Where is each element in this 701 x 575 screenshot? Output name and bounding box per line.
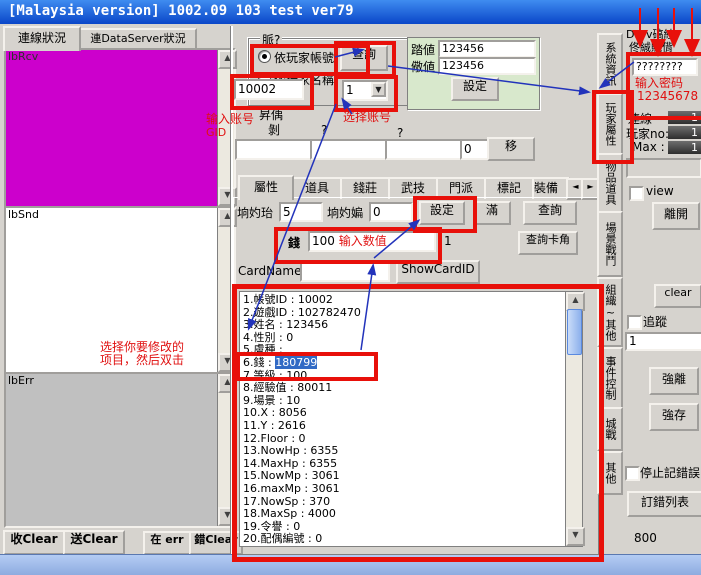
taskbar [0,554,701,575]
list-item[interactable]: 11.Y : 2616 [243,420,582,433]
port-value: 800 [634,531,657,545]
vtab-player-attributes[interactable]: 玩家屬性 [597,93,623,155]
value-row2-input[interactable]: 123456 [438,57,536,75]
list-item[interactable]: 3.姓名 : 123456 [243,319,582,332]
tab-skills[interactable]: 武技 [388,177,438,199]
list-item[interactable]: 1.帳號ID : 10002 [243,294,582,307]
scroll-up-icon[interactable]: ▲ [218,50,237,69]
cardname-input[interactable] [300,261,390,282]
radio-by-account[interactable] [258,50,271,63]
list-item[interactable]: 20.配偶編號 : 0 [243,533,582,546]
list-item[interactable]: 13.NowHp : 6355 [243,445,582,458]
field1-input[interactable]: 5 [279,202,323,222]
vtab-event-control[interactable]: 事件控制 [597,347,623,409]
attr-set-button[interactable]: 設定 [419,201,465,225]
list-item[interactable]: 4.性別 : 0 [243,332,582,345]
force-save-button[interactable]: 強存 [649,403,699,431]
transfer-label-left: 剝 [268,121,280,138]
transfer-q1: ? [321,123,327,137]
stop-log-label: 停止記錯誤 [640,464,701,481]
status-bar-empty [626,158,701,178]
annotation-enter-account: 输入账号 GID [206,113,254,139]
vtab-other[interactable]: 其他 [597,451,623,495]
dropdown-arrow-icon[interactable]: ▼ [371,82,386,97]
selected-value: 180799 [275,356,317,369]
transfer-count-input[interactable]: 0 [460,139,490,160]
scroll-down-icon[interactable]: ▼ [566,527,585,546]
player-list-scrollbar[interactable]: ▲ ▼ [565,292,582,546]
tab-faction[interactable]: 門派 [436,177,486,199]
transfer-input-1[interactable] [235,139,313,160]
error-list-button[interactable]: 訂錯列表 [627,491,701,517]
money-label: 錢 [288,234,300,251]
query-group-title: 脈? [260,31,282,48]
err-button[interactable]: 在 err [143,531,191,555]
window-title: [Malaysia version] 1002.09 103 test ver7… [8,3,354,19]
snd-listbox-label: lbSnd [8,208,39,221]
tab-items[interactable]: 道具 [292,177,342,199]
err-listbox[interactable]: lbErr ▲ ▼ [4,372,236,528]
money-count-label: 1 [444,234,452,248]
annotation-select-account: 选择账号 [343,111,391,124]
move-button[interactable]: 移 [487,137,535,161]
field2-input[interactable]: 0 [369,202,413,222]
attr-query-button[interactable]: 查詢 [523,201,577,225]
tab-equipment[interactable]: 裝備 [532,177,570,199]
tab-connection-status[interactable]: 連線狀況 [3,26,81,51]
view-label: view [646,184,674,198]
account-select[interactable]: 1 ▼ [342,80,388,101]
rcv-clear-button[interactable]: 收Clear [3,530,65,555]
view-checkbox[interactable] [629,186,644,201]
title-bar[interactable]: [Malaysia version] 1002.09 103 test ver7… [0,0,701,24]
max-value: 1 [668,141,701,154]
tab-dataserver-status[interactable]: 連DataServer狀況 [79,28,197,50]
money-input[interactable]: 100 输入数值 [308,231,436,252]
vtab-system-info[interactable]: 系統資訊 [597,33,623,95]
vtab-city-war[interactable]: 城戰 [597,407,623,451]
field2-label: 垧妁媥 [327,204,363,221]
vtab-org-other[interactable]: 組織~其他 [597,277,623,347]
list-item[interactable]: 16.maxMp : 3061 [243,483,582,496]
cardname-label: CardName [238,264,301,278]
annotation-select-item: 选择你要修改的 项目，然后双击 [100,341,184,367]
tab-marks[interactable]: 標記 [484,177,534,199]
snd-clear-button[interactable]: 送Clear [63,530,125,555]
playerno-value: 1 [668,126,701,139]
full-button[interactable]: 滿 [473,201,511,225]
annotation-password-hint: 12345678 [637,90,698,103]
password-input[interactable]: ???????? [632,58,698,76]
transfer-input-2[interactable] [310,139,388,160]
list-item[interactable]: 8.經驗值 : 80011 [243,382,582,395]
player-list[interactable]: 1.帳號ID : 10002 2.遊戲ID : 102782470 3.姓名 :… [239,291,583,547]
tab-bank[interactable]: 錢莊 [340,177,390,199]
radio-by-account-label: 依玩家帳號 [274,49,334,66]
scrollbar-thumb[interactable] [567,309,582,355]
showcardid-button[interactable]: ShowCardID [396,260,480,284]
track-label: 追蹤 [643,313,667,330]
tab-attributes[interactable]: 屬性 [238,175,294,200]
err-listbox-label: lbErr [8,374,34,387]
query-button[interactable]: 查詢 [340,45,388,71]
max-label: Max : [632,140,665,154]
field1-label: 垧妁珆 [237,204,273,221]
annotation-enter-value: 输入数值 [339,234,387,248]
rcv-listbox[interactable]: lbRcv ▲ ▼ [4,48,236,208]
transfer-input-3[interactable] [385,139,463,160]
vtab-scene-battle[interactable]: 場景戰鬥 [597,211,623,277]
ds-line2: 佟絾賳偝 [629,39,673,55]
track-input[interactable]: 1 [625,332,701,351]
rcv-listbox-label: lbRcv [8,50,38,63]
value-row2-label: 儆値 [411,58,435,75]
leave-button[interactable]: 離開 [652,202,700,230]
value-set-button[interactable]: 設定 [451,77,499,101]
clear-button[interactable]: clear [654,284,701,308]
force-leave-button[interactable]: 強離 [649,367,699,395]
app-window: [Malaysia version] 1002.09 103 test ver7… [0,0,701,575]
value-row1-label: 踏値 [411,41,435,58]
list-item[interactable]: 18.MaxSp : 4000 [243,508,582,521]
vtab-item-props[interactable]: 物品道具 [597,153,623,213]
account-input[interactable]: 10002 [234,79,304,100]
list-item-money[interactable]: 6.錢 : 180799 [243,357,582,370]
value-row1-input[interactable]: 123456 [438,40,536,58]
transfer-q2: ? [397,126,403,140]
track-checkbox[interactable] [627,315,642,330]
query-card-button[interactable]: 查詢卡角 [518,231,578,255]
conn-value: 1 [668,111,701,124]
stop-log-checkbox[interactable] [625,466,640,481]
